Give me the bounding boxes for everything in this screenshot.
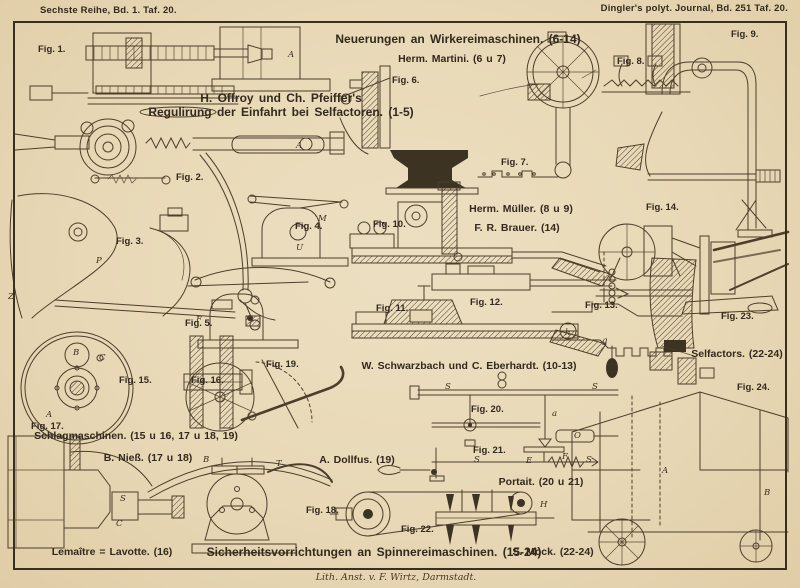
- attribution-lemaitre: Lemaître = Lavotte. (16): [52, 546, 173, 558]
- attribution-martini: Herm. Martini. (6 u 7): [398, 53, 506, 65]
- fig-label-22: Fig. 22.: [401, 524, 434, 535]
- heading-sicherheitsvorrichtungen: Sicherheitsvorrichtungen an Spinnereimas…: [207, 545, 542, 559]
- heading-offroy-line1: H. Offroy und Ch. Pfeiffer's: [200, 91, 362, 105]
- fig-label-8: Fig. 8.: [617, 56, 644, 67]
- part-letter-M-5: M: [318, 214, 327, 224]
- part-letter-B-26: B: [764, 488, 770, 498]
- series-caption: Sechste Reihe, Bd. 1. Taf. 20.: [40, 5, 177, 16]
- part-letter-A-1: A: [296, 141, 302, 151]
- part-letter-A-0: A: [288, 50, 294, 60]
- fig-label-1: Fig. 1.: [38, 44, 65, 55]
- fig-label-24: Fig. 24.: [737, 382, 770, 393]
- part-letter-U-6: U: [296, 243, 303, 253]
- attribution-selfactors: Selfactors. (22-24): [691, 348, 782, 360]
- part-letter-g-15: g: [602, 336, 607, 346]
- attribution-niess: B. Nieß. (17 u 18): [104, 452, 193, 464]
- attribution-portait: Portait. (20 u 21): [499, 476, 584, 488]
- fig-label-15: Fig. 15.: [119, 375, 152, 386]
- part-letter-A-9: A: [46, 410, 52, 420]
- part-letter-O-17: O: [574, 431, 581, 441]
- part-letter-A-25: A: [662, 466, 668, 476]
- part-letter-E-18: E: [526, 456, 532, 466]
- heading-offroy-line2: Regulirung der Einfahrt bei Selfactoren.…: [148, 105, 413, 119]
- part-letter-T-12: T: [276, 459, 282, 469]
- fig-label-18: Fig. 18.: [306, 505, 339, 516]
- fig-label-14: Fig. 14.: [646, 202, 679, 213]
- part-letter-B-13: B: [203, 455, 209, 465]
- fig-label-2: Fig. 2.: [176, 172, 203, 183]
- part-letter-B-7: B: [73, 348, 79, 358]
- part-letter-C-8: C: [99, 353, 106, 363]
- part-letter-S-23: S: [586, 455, 592, 465]
- part-letter-P-4: P: [96, 256, 102, 266]
- fig-label-17: Fig. 17.: [31, 421, 64, 432]
- part-letter-S-10: S: [120, 494, 126, 504]
- part-letter-S-20: S: [445, 382, 451, 392]
- attribution-mueller: Herm. Müller. (8 u 9): [469, 203, 573, 215]
- fig-label-23: Fig. 23.: [721, 311, 754, 322]
- fig-label-13: Fig. 13.: [585, 300, 618, 311]
- fig-label-12: Fig. 12.: [470, 297, 503, 308]
- journal-caption: Dingler's polyt. Journal, Bd. 251 Taf. 2…: [601, 3, 788, 14]
- fig-label-16: Fig. 16.: [191, 375, 224, 386]
- plate-border: [13, 21, 787, 570]
- lithograph-plate: { "page": { "top_left": "Sechste Reihe, …: [0, 0, 800, 588]
- part-letter-C-11: C: [116, 519, 123, 529]
- fig-label-11: Fig. 11.: [376, 303, 408, 314]
- part-letter-S-21: S: [592, 382, 598, 392]
- part-letter-F-19: F: [562, 452, 568, 462]
- part-letter-F-2: F: [196, 315, 202, 325]
- lithographer-imprint: Lith. Anst. v. F. Wirtz, Darmstadt.: [316, 572, 477, 583]
- part-letter-S-22: S: [474, 455, 480, 465]
- attribution-brauer: F. R. Brauer. (14): [474, 222, 559, 234]
- part-letter-a-16: a: [552, 409, 557, 419]
- attribution-dollfus: A. Dollfus. (19): [319, 454, 395, 466]
- fig-label-19: Fig. 19.: [266, 359, 299, 370]
- fig-label-10: Fig. 10.: [373, 219, 406, 230]
- heading-schlagmaschinen: Schlagmaschinen. (15 u 16, 17 u 18, 19): [34, 430, 238, 442]
- part-letter-h-14: h: [565, 328, 570, 338]
- part-letter-H-24: H: [540, 500, 547, 510]
- attribution-mock: S. Mock. (22-24): [512, 546, 593, 558]
- fig-label-9: Fig. 9.: [731, 29, 758, 40]
- heading-wirkereimaschinen: Neuerungen an Wirkereimaschinen. (6-14): [335, 32, 580, 46]
- attribution-schwarzbach: W. Schwarzbach und C. Eberhardt. (10-13): [361, 360, 576, 372]
- part-letter-Z-3: Z: [8, 292, 14, 302]
- fig-label-6: Fig. 6.: [392, 75, 419, 86]
- fig-label-7: Fig. 7.: [501, 157, 528, 168]
- fig-label-3: Fig. 3.: [116, 236, 143, 247]
- fig-label-20: Fig. 20.: [471, 404, 504, 415]
